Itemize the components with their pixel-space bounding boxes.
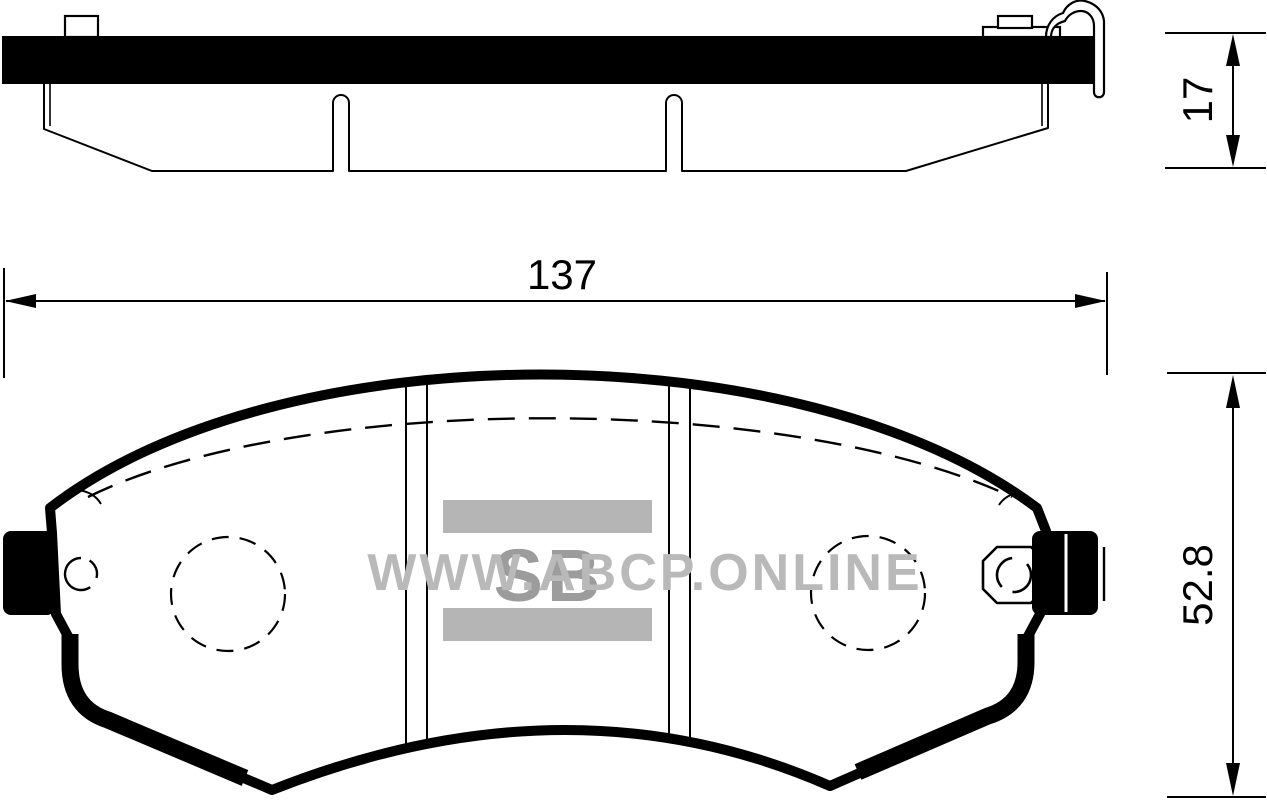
clip-tab (998, 16, 1032, 28)
backing-plate-bar (2, 36, 1097, 84)
dimension-arrow-right-icon (1075, 294, 1106, 308)
dimension-arrow-up-icon (1226, 34, 1240, 66)
drawing-canvas: 17 137 (0, 0, 1267, 800)
width-dimension: 137 (4, 251, 1107, 378)
thickness-dimension-label: 17 (1174, 77, 1221, 124)
left-lug (3, 531, 55, 615)
height-dimension-label: 52.8 (1174, 544, 1221, 626)
watermark-bar-top (443, 500, 652, 533)
thickness-dimension: 17 (1165, 33, 1266, 168)
dimension-arrow-up-icon (1226, 375, 1240, 408)
height-dimension: 52.8 (1167, 373, 1266, 797)
dimension-arrow-down-icon (1226, 135, 1240, 167)
technical-drawing: 17 137 (0, 0, 1267, 800)
friction-material-profile (44, 78, 1048, 171)
watermark-text: WWW.ABCP.ONLINE (367, 544, 922, 602)
dimension-arrow-down-icon (1226, 763, 1240, 796)
dimension-arrow-left-icon (5, 294, 36, 308)
side-profile-view (2, 1, 1104, 171)
width-dimension-label: 137 (527, 251, 597, 298)
left-tab (65, 16, 98, 37)
